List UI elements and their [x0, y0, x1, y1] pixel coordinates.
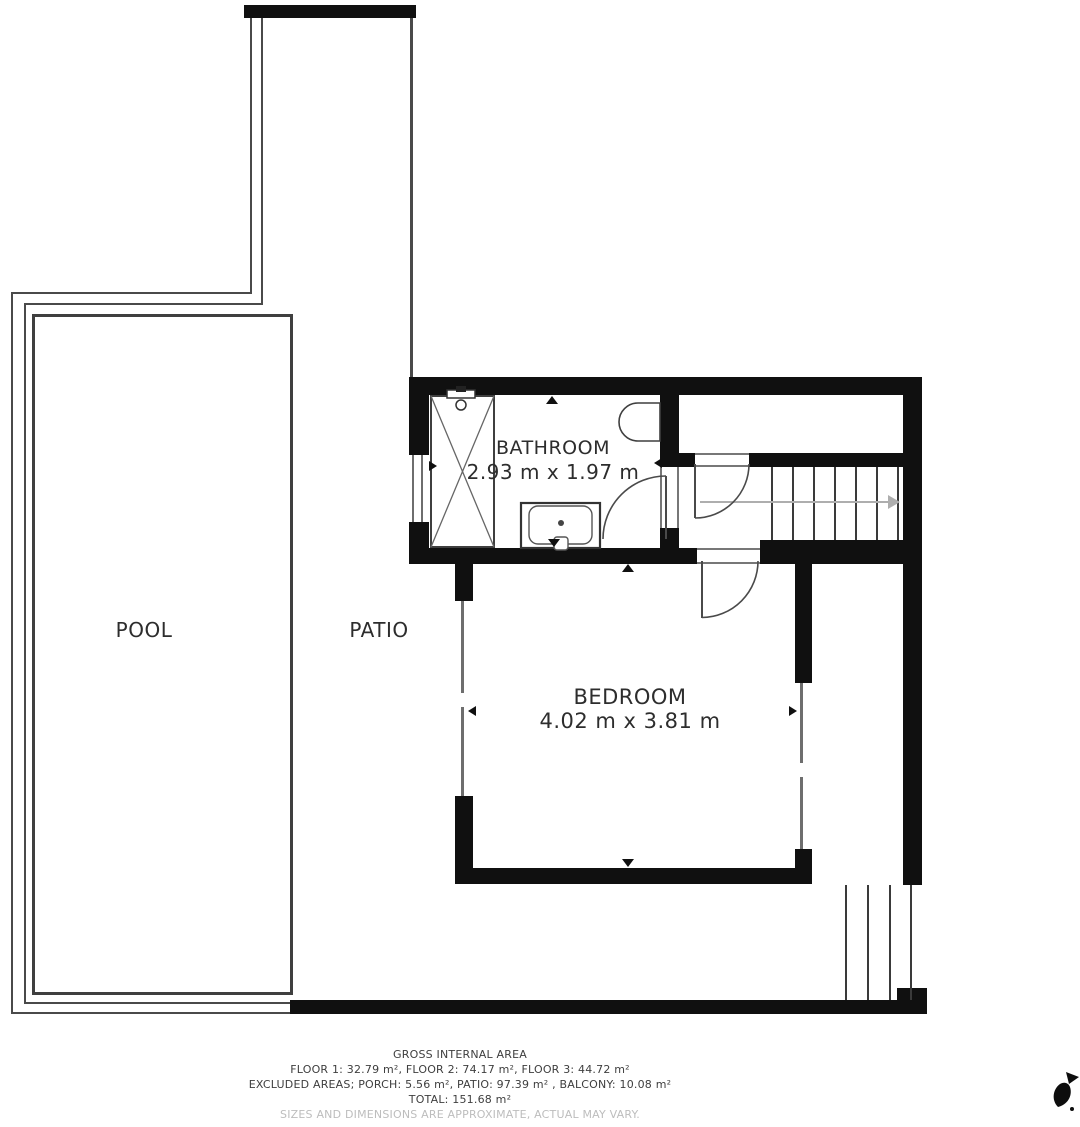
area-summary-title: GROSS INTERNAL AREA [0, 1047, 920, 1062]
floor-plan-canvas: POOL PATIO BATHROOM 2.93 m x 1.97 m BEDR… [0, 0, 1080, 1127]
pool-label: POOL [64, 618, 224, 642]
area-summary-disclaimer: SIZES AND DIMENSIONS ARE APPROXIMATE, AC… [0, 1107, 920, 1122]
area-summary-excluded: EXCLUDED AREAS; PORCH: 5.56 m², PATIO: 9… [0, 1077, 920, 1092]
marker-bathroom-window-icon [429, 461, 437, 471]
bathroom-door [603, 476, 666, 539]
shower-head-icon [456, 400, 466, 410]
marker-bedroom-right-window-icon [789, 706, 797, 716]
area-summary-total: TOTAL: 151.68 m² [0, 1092, 920, 1107]
patio-label: PATIO [299, 618, 459, 642]
marker-bedroom-left-window-icon [468, 706, 476, 716]
area-summary: GROSS INTERNAL AREA FLOOR 1: 32.79 m², F… [0, 1047, 920, 1122]
marker-bathroom-top-icon [546, 396, 558, 404]
toilet [619, 403, 660, 441]
marker-bedroom-top-icon [622, 564, 634, 572]
marker-bedroom-bottom-icon [622, 859, 634, 867]
bedroom-label: BEDROOM [526, 685, 734, 709]
bathroom-dimensions: 2.93 m x 1.97 m [448, 460, 658, 484]
sink-faucet-icon [558, 520, 564, 526]
sink [521, 503, 600, 550]
area-summary-floors: FLOOR 1: 32.79 m², FLOOR 2: 74.17 m², FL… [0, 1062, 920, 1077]
landing-door [695, 464, 749, 518]
fixtures-overlay [0, 0, 1080, 1127]
shower-mount-icon [456, 386, 466, 392]
bird-logo-icon [1042, 1062, 1080, 1114]
bathroom-label: BATHROOM [453, 437, 653, 459]
marker-bathroom-bottom-icon [548, 539, 560, 547]
bedroom-dimensions: 4.02 m x 3.81 m [526, 709, 734, 733]
bedroom-door [702, 561, 758, 618]
